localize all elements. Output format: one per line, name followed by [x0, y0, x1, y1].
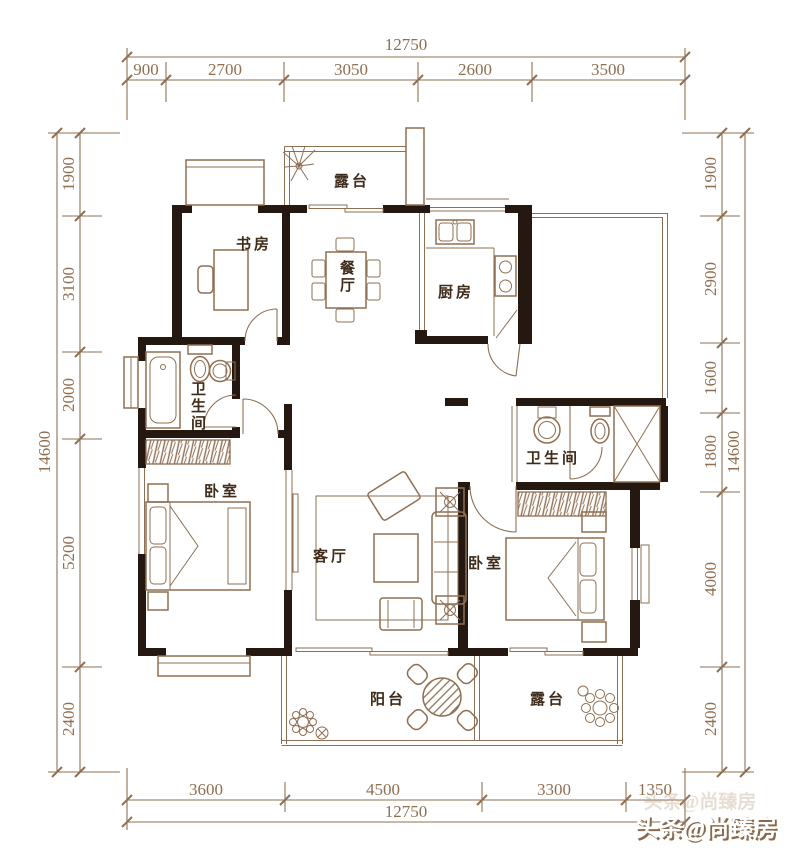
terrace-bottom-plant: [578, 686, 619, 727]
label-dining: 餐厅: [338, 259, 355, 294]
label-bedroom-left: 卧室: [204, 482, 240, 500]
sink-right: [534, 417, 560, 443]
label-kitchen: 厨房: [438, 283, 474, 301]
dim-top-seg-4: 2600: [458, 60, 492, 79]
dim-right-seg-6: 2400: [701, 702, 720, 736]
dim-bottom-total: 12750: [385, 802, 428, 821]
bedroom-left-bay-window: [158, 656, 250, 676]
desk: [214, 250, 248, 310]
label-balcony: 阳台: [370, 690, 406, 708]
dimension-chain-right: 1900 2900 1600 1800 4000 2400 14600: [682, 128, 754, 777]
bedroom-right-furniture: [506, 492, 606, 642]
kitchen-furniture: [426, 220, 517, 338]
coffee-table: [374, 534, 418, 582]
dim-left-total: 14600: [35, 431, 54, 474]
chair: [455, 661, 480, 686]
dim-right-seg-1: 1900: [701, 157, 720, 191]
label-terrace-top: 露台: [334, 172, 370, 190]
dim-right-seg-2: 2900: [701, 262, 720, 296]
dim-top-seg-3: 3050: [334, 60, 368, 79]
terrace-column: [406, 128, 424, 205]
bedroom-left-door: [243, 399, 278, 434]
label-bathroom-left: 卫生间: [189, 381, 206, 432]
dim-right-seg-3: 1600: [701, 361, 720, 395]
dimension-chain-top: 12750 900 2700 3050 2600 3500: [122, 35, 690, 120]
chair: [455, 708, 480, 733]
bathtub: [146, 352, 180, 428]
terrace-sliding-door: [309, 205, 347, 209]
chair: [405, 707, 430, 732]
dim-right-seg-4: 1800: [701, 435, 720, 469]
dim-left-seg-3: 2000: [59, 378, 78, 412]
desk-chair: [198, 266, 213, 293]
toilet-left: [188, 345, 212, 354]
bathroom-right-partition: [512, 406, 517, 482]
dim-right-seg-5: 4000: [701, 562, 720, 596]
plant-icon: [290, 709, 329, 740]
dimension-chain-bottom: 3600 4500 3300 1350 12750: [122, 768, 690, 830]
wardrobe-left: [146, 440, 230, 464]
chair: [405, 662, 430, 687]
dim-left-seg-4: 5200: [59, 536, 78, 570]
nightstand: [148, 592, 168, 610]
nightstand: [582, 622, 606, 642]
label-living-room: 客厅: [312, 547, 349, 565]
watermark: 头条@尚臻房 头条@尚臻房 头条@尚臻房: [635, 790, 779, 844]
dim-top-seg-1: 900: [133, 60, 159, 79]
tv-wall: [286, 470, 292, 590]
label-bathroom-right: 卫生间: [526, 449, 580, 467]
floorplan-page: 12750 900 2700 3050 2600 3500 3600 4500 …: [0, 0, 802, 865]
dim-left-seg-1: 1900: [59, 157, 78, 191]
bathroom-left-door: [204, 395, 236, 427]
label-bedroom-right: 卧室: [468, 554, 504, 572]
label-terrace-bottom: 露台: [530, 690, 566, 708]
watermark-text: 头条@尚臻房: [635, 814, 777, 842]
dimension-chain-left: 14600 1900 3100 2000 5200 2400: [35, 128, 120, 777]
dim-left-seg-5: 2400: [59, 702, 78, 736]
east-edge-line: [532, 213, 668, 398]
dim-right-total: 14600: [724, 431, 743, 474]
round-table: [423, 678, 461, 716]
bed-right: [506, 538, 604, 620]
living-sliding-door: [296, 648, 372, 652]
label-study: 书房: [236, 235, 272, 253]
tv: [293, 494, 298, 572]
bedroom-right-window: [632, 548, 638, 600]
kitchen-window: [426, 199, 509, 211]
bedroom-left-furniture: [146, 440, 250, 610]
floorplan-drawing: 12750 900 2700 3050 2600 3500 3600 4500 …: [0, 0, 802, 865]
bedroom-right-sliding-door: [510, 648, 547, 652]
bathroom-right-fixtures: [534, 406, 660, 482]
dim-top-seg-2: 2700: [208, 60, 242, 79]
toilet-right: [590, 407, 610, 416]
bedroom-right-door: [470, 486, 516, 532]
watermark-ghost: 头条@尚臻房: [644, 790, 757, 813]
nightstand: [148, 484, 168, 502]
lounge-chair: [380, 598, 422, 630]
dim-top-seg-5: 3500: [591, 60, 625, 79]
stove: [495, 256, 516, 296]
kitchen-door: [488, 344, 520, 376]
kitchen-partition: [420, 213, 425, 330]
dim-bottom-seg-1: 3600: [189, 780, 223, 799]
bedroom-left-window: [139, 468, 145, 554]
dim-left-seg-2: 3100: [59, 267, 78, 301]
dim-bottom-seg-2: 4500: [366, 780, 400, 799]
walls: [138, 205, 668, 656]
study-door: [245, 309, 277, 341]
dim-bottom-seg-3: 3300: [537, 780, 571, 799]
dim-top-total: 12750: [385, 35, 428, 54]
study-furniture: [198, 250, 248, 310]
